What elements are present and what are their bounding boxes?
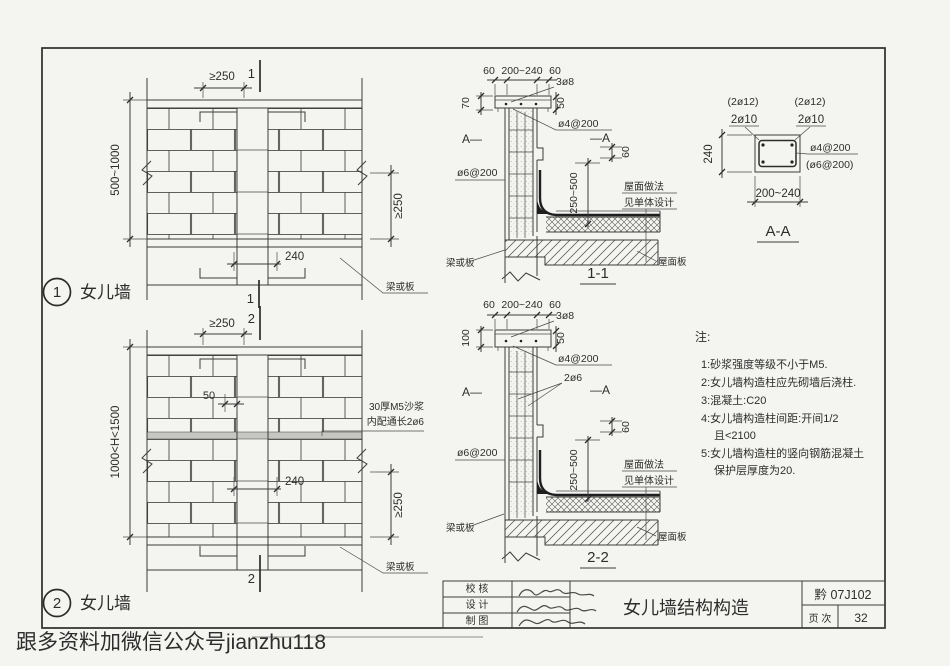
brick-wall-right <box>268 355 362 537</box>
dim-coping-edge: 50 <box>555 332 567 344</box>
roof-insulation-hatch <box>546 497 660 512</box>
cut-mark-a-right: —A <box>590 383 610 397</box>
detail-index-number: 2 <box>53 595 61 612</box>
note-line-1: 1:砂浆强度等级不小于M5. <box>701 357 828 371</box>
general-notes: 注: 1:砂浆强度等级不小于M5. 2:女儿墙构造柱应先砌墙后浇柱. 3:混凝土… <box>695 329 864 477</box>
roof-note-line2: 见单体设计 <box>624 196 674 209</box>
notes-heading: 注: <box>695 329 710 344</box>
beam-leader-line <box>340 547 428 573</box>
bars-left: 2ø10 <box>731 114 757 126</box>
note-line-4: 4:女儿墙构造柱间距:开间1/2 <box>701 411 839 425</box>
note-line-5b: 保护层厚度为20. <box>714 463 795 477</box>
roof-insulation-hatch <box>546 217 660 232</box>
dim-coping-height: 70 <box>460 97 472 109</box>
dim-section-width: 200~240 <box>755 188 800 200</box>
brick-wall-left <box>147 355 237 537</box>
page-label: 页 次 <box>809 612 832 625</box>
roof-membrane <box>540 450 660 495</box>
section-title: 2-2 <box>587 549 609 566</box>
tie-bar-optional-label: (ø6@200) <box>806 159 853 171</box>
beam-leader-line <box>340 258 428 293</box>
roof-slab-step-hatch <box>545 537 658 545</box>
dim-label-height: 500~1000 <box>110 144 122 196</box>
roof-slab-hatch <box>505 240 658 257</box>
section-cut-label-bottom: 2 <box>248 571 255 586</box>
roof-note-line2: 见单体设计 <box>624 474 674 487</box>
watermark: 跟多资料加微信公众号jianzhu118 <box>16 631 483 654</box>
beam-break-mark <box>502 552 540 561</box>
tie-bar-label: ø4@200 <box>810 142 851 154</box>
detail-title: 女儿墙 <box>80 594 131 613</box>
detail-1-parapet-elevation: ≥250 1 500~1000 ≥250 240 梁或板 1 1 女儿墙 <box>44 60 429 308</box>
wall-stipple <box>509 108 533 236</box>
column-course-lines <box>237 150 268 234</box>
beam-label: 梁或板 <box>386 561 415 573</box>
detail-index-number: 1 <box>53 284 61 301</box>
design-signature <box>517 606 596 612</box>
brick-wall-left <box>147 108 237 239</box>
mortar-note-line2: 内配通长2ø6 <box>367 415 425 428</box>
roof-slab-hatch <box>505 520 658 537</box>
section-title: 1-1 <box>587 265 609 282</box>
constructional-column <box>237 108 268 285</box>
cut-mark-a-right: —A <box>590 131 610 145</box>
column-course-lines <box>237 397 268 523</box>
dim-200-240: 200~240 <box>501 65 542 77</box>
note-line-4b: 且<2100 <box>714 430 756 442</box>
beam-label: 梁或板 <box>446 257 475 269</box>
page-number: 32 <box>854 611 868 625</box>
dim-parapet-range: 250~500 <box>568 172 580 213</box>
dim-200-240: 200~240 <box>501 299 542 311</box>
dim-label-right: ≥250 <box>393 492 405 518</box>
section-cut-label-bottom: 1 <box>247 291 254 306</box>
drawing-sheet: ≥250 1 500~1000 ≥250 240 梁或板 1 1 女儿墙 <box>0 0 950 666</box>
dim-label-top: ≥250 <box>209 71 235 83</box>
rebar-2d6-label: 2ø6 <box>564 372 582 384</box>
brick-wall-right <box>268 108 362 239</box>
dim-coping-edge: 50 <box>555 97 567 109</box>
dim-label-top: ≥250 <box>209 318 235 330</box>
dim-label-right: ≥250 <box>393 193 405 219</box>
design-label: 设 计 <box>466 598 489 611</box>
draft-signature <box>519 620 585 626</box>
rebar-d4-label: ø4@200 <box>558 353 599 365</box>
note-line-2: 2:女儿墙构造柱应先砌墙后浇柱. <box>701 375 856 389</box>
cut-mark-a-left: A— <box>462 385 482 399</box>
rebar-3d8-label: 3ø8 <box>556 76 574 88</box>
note-line-5: 5:女儿墙构造柱的竖向钢筋混凝土 <box>701 446 864 460</box>
wall-notch <box>537 148 543 160</box>
note-line-3: 3:混凝土:C20 <box>701 393 766 407</box>
stirrup-hoop <box>759 141 796 167</box>
section-cut-label-top: 1 <box>248 66 255 81</box>
detail-2-parapet-elevation: ≥250 2 1000<H<1500 50 30厚M5沙浆 内配通长2ø6 24… <box>44 306 429 617</box>
mortar-note-line1: 30厚M5沙浆 <box>369 400 424 413</box>
roof-slab-step-hatch <box>545 257 658 265</box>
wall-notch <box>537 425 543 437</box>
dim-label-width: 240 <box>285 251 304 263</box>
section-title: A-A <box>765 223 790 240</box>
roof-note-line1: 屋面做法 <box>624 180 664 193</box>
mortar-band <box>147 432 362 439</box>
dim-60-left: 60 <box>483 65 495 77</box>
detail-title: 女儿墙 <box>80 283 131 302</box>
bars-optional-right: (2ø12) <box>795 96 826 108</box>
drawing-canvas: ≥250 1 500~1000 ≥250 240 梁或板 1 1 女儿墙 <box>0 0 950 666</box>
dim-section-height: 240 <box>703 144 715 163</box>
title-block: 校 核 设 计 制 图 女儿墙结构构造 黔 07J102 页 次 32 <box>443 581 885 628</box>
check-signature <box>519 590 594 596</box>
bars-right: 2ø10 <box>798 114 824 126</box>
drawing-title: 女儿墙结构构造 <box>623 598 749 618</box>
roof-slab-label: 屋面板 <box>658 256 687 268</box>
rebar-d4-label: ø4@200 <box>558 118 599 130</box>
dim-parapet-range: 250~500 <box>568 449 580 490</box>
section-a-a: (2ø12) (2ø12) 2ø10 2ø10 240 ø4@200 (ø6@2… <box>703 96 858 242</box>
check-label: 校 核 <box>466 582 489 595</box>
watermark-text: 跟多资料加微信公众号jianzhu118 <box>16 631 326 654</box>
beam-label: 梁或板 <box>446 522 475 534</box>
bars-optional-left: (2ø12) <box>728 96 759 108</box>
atlas-number: 黔 07J102 <box>815 587 872 602</box>
beam-label: 梁或板 <box>386 281 415 293</box>
section-cut-label-top: 2 <box>248 311 255 326</box>
dim-upstand: 60 <box>620 146 632 158</box>
dim-upstand: 60 <box>620 421 632 433</box>
cut-mark-a-left: A— <box>462 132 482 146</box>
constructional-column <box>237 355 268 570</box>
roof-note-line1: 屋面做法 <box>624 458 664 471</box>
dim-coping-height: 100 <box>460 329 472 347</box>
rebar-d6-label: ø6@200 <box>457 167 498 179</box>
dim-label-width: 240 <box>285 476 304 488</box>
roof-slab-label: 屋面板 <box>658 531 687 543</box>
section-1-1: 60 200~240 60 70 50 3ø8 ø4@200 A— —A ø6@… <box>446 65 687 284</box>
beam-break-mark <box>502 272 540 281</box>
dim-label-height: 1000<H<1500 <box>110 406 122 479</box>
draft-label: 制 图 <box>466 614 489 627</box>
rebar-d6-label: ø6@200 <box>457 447 498 459</box>
rebar-3d8-label: 3ø8 <box>556 310 574 322</box>
dim-label-offset: 50 <box>203 390 215 402</box>
section-2-2: 60 200~240 60 100 50 3ø8 ø4@200 2ø6 A— —… <box>446 299 687 568</box>
dim-60-left: 60 <box>483 299 495 311</box>
